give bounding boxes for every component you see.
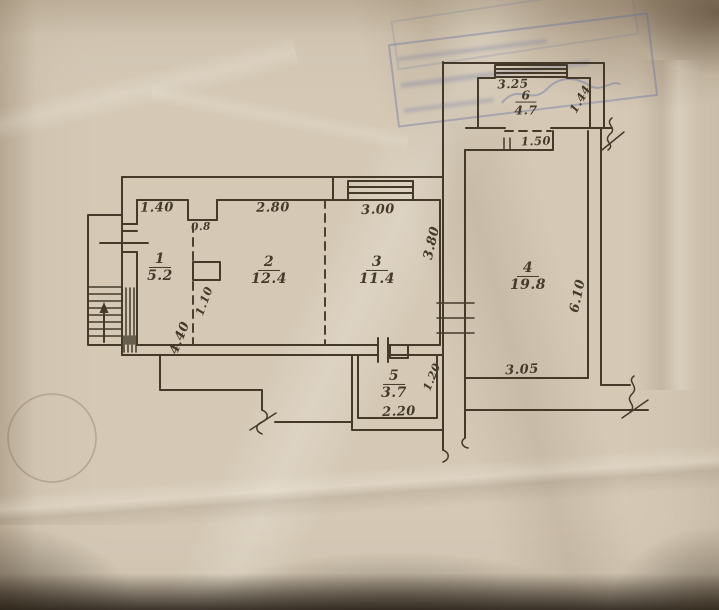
dim-room6-width: 3.25 [497,76,529,91]
wall-break-icon [629,376,634,412]
room4-walls [465,128,648,418]
dim-room4-width: 3.05 [505,362,539,379]
room-3-area: 11.4 [359,272,395,287]
floor-plan-scan: 1 5.2 2 12.4 3 11.4 4 19.8 5 3.7 6 4.7 1… [0,0,719,610]
staircase [88,215,136,352]
dim-niche-width: 0.8 [191,221,211,234]
plan-drawing [0,0,719,610]
wall-break-icon [443,450,448,462]
room-4-number: 4 [517,261,539,277]
lower-left-wall [160,355,352,434]
dim-room1-width: 1.40 [140,200,174,216]
wall-break-icon [462,438,468,448]
dim-room3-width: 3.00 [361,202,395,218]
room-2-area: 12.4 [251,272,287,287]
room-3-number: 3 [366,255,388,271]
flue-box [193,262,220,280]
dim-room5-width: 2.20 [382,404,416,420]
room-2-number: 2 [258,255,280,271]
room-5-number: 5 [383,369,405,385]
window-icon-room3 [348,181,413,200]
room-3-label: 3 11.4 [359,255,395,287]
room-2-label: 2 12.4 [251,255,287,287]
room-4-area: 19.8 [510,278,546,293]
room-1-label: 1 5.2 [147,252,173,284]
door-icon-room5 [378,338,408,362]
faint-circle-watermark [8,394,96,482]
window-icon-room6 [495,65,567,77]
room-6-label: 6 4.7 [514,89,537,118]
room-1-area: 5.2 [147,269,173,284]
wall-niche [188,200,217,220]
dim-opening-width: 1.50 [521,133,551,148]
room-5-area: 3.7 [381,386,407,401]
door-icon-entrance [100,224,148,252]
room-1-number: 1 [149,252,171,268]
corridor-wall [437,62,474,462]
room-6-area: 4.7 [514,104,537,118]
room-5-label: 5 3.7 [381,369,407,401]
dim-room2-width: 2.80 [256,200,290,216]
room-4-label: 4 19.8 [510,261,546,293]
